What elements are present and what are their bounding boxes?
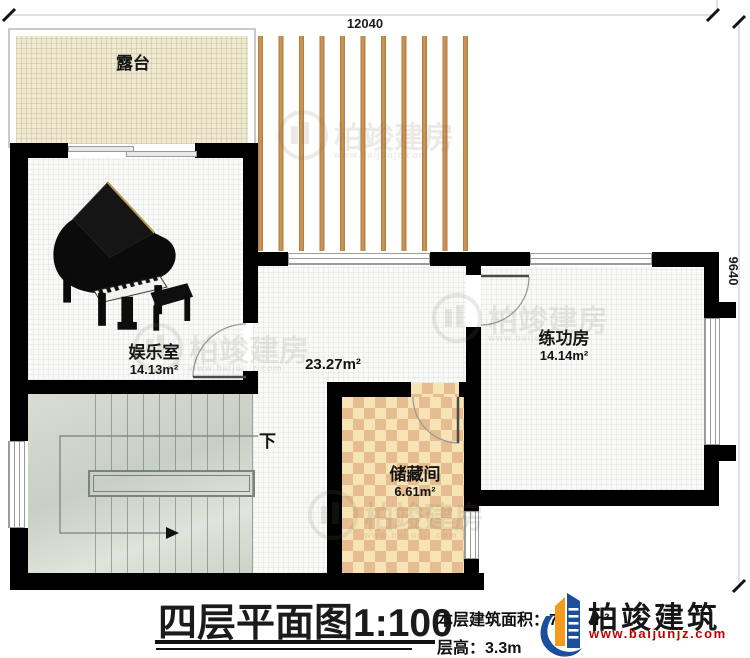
floor-plan: 露台 xyxy=(0,0,750,658)
room-area: 23.27m² xyxy=(283,357,383,374)
brand-logo-icon xyxy=(534,590,586,658)
title-underline-thin xyxy=(156,648,412,650)
title-underline xyxy=(155,640,435,644)
practice-room-label: 练功房 14.14m² xyxy=(504,330,624,363)
dimension-width: 12040 xyxy=(325,16,405,31)
room-area: 14.14m² xyxy=(504,349,624,363)
dimension-height: 9640 xyxy=(725,241,741,301)
entertainment-room-label: 娱乐室 14.13m² xyxy=(94,344,214,377)
storage-room-label: 储藏间 6.61m² xyxy=(355,466,475,499)
stairs-down-label: 下 xyxy=(259,427,276,452)
room-name: 储藏间 xyxy=(355,466,475,485)
door-arc-practice xyxy=(481,277,529,325)
stairs-walk-line xyxy=(60,436,258,533)
linework-overlay xyxy=(0,0,750,658)
room-area: 6.61m² xyxy=(355,485,475,499)
room-name: 练功房 xyxy=(504,330,624,349)
room-area: 14.13m² xyxy=(94,363,214,377)
stairs-walk-arrow xyxy=(166,527,179,539)
hall-label: 23.27m² xyxy=(283,357,383,374)
room-name: 娱乐室 xyxy=(94,344,214,363)
brand-website: www.baijunjz.com xyxy=(589,626,727,641)
floor-height-line: 层高：3.3m xyxy=(437,634,521,658)
door-arc-storage xyxy=(413,397,459,443)
